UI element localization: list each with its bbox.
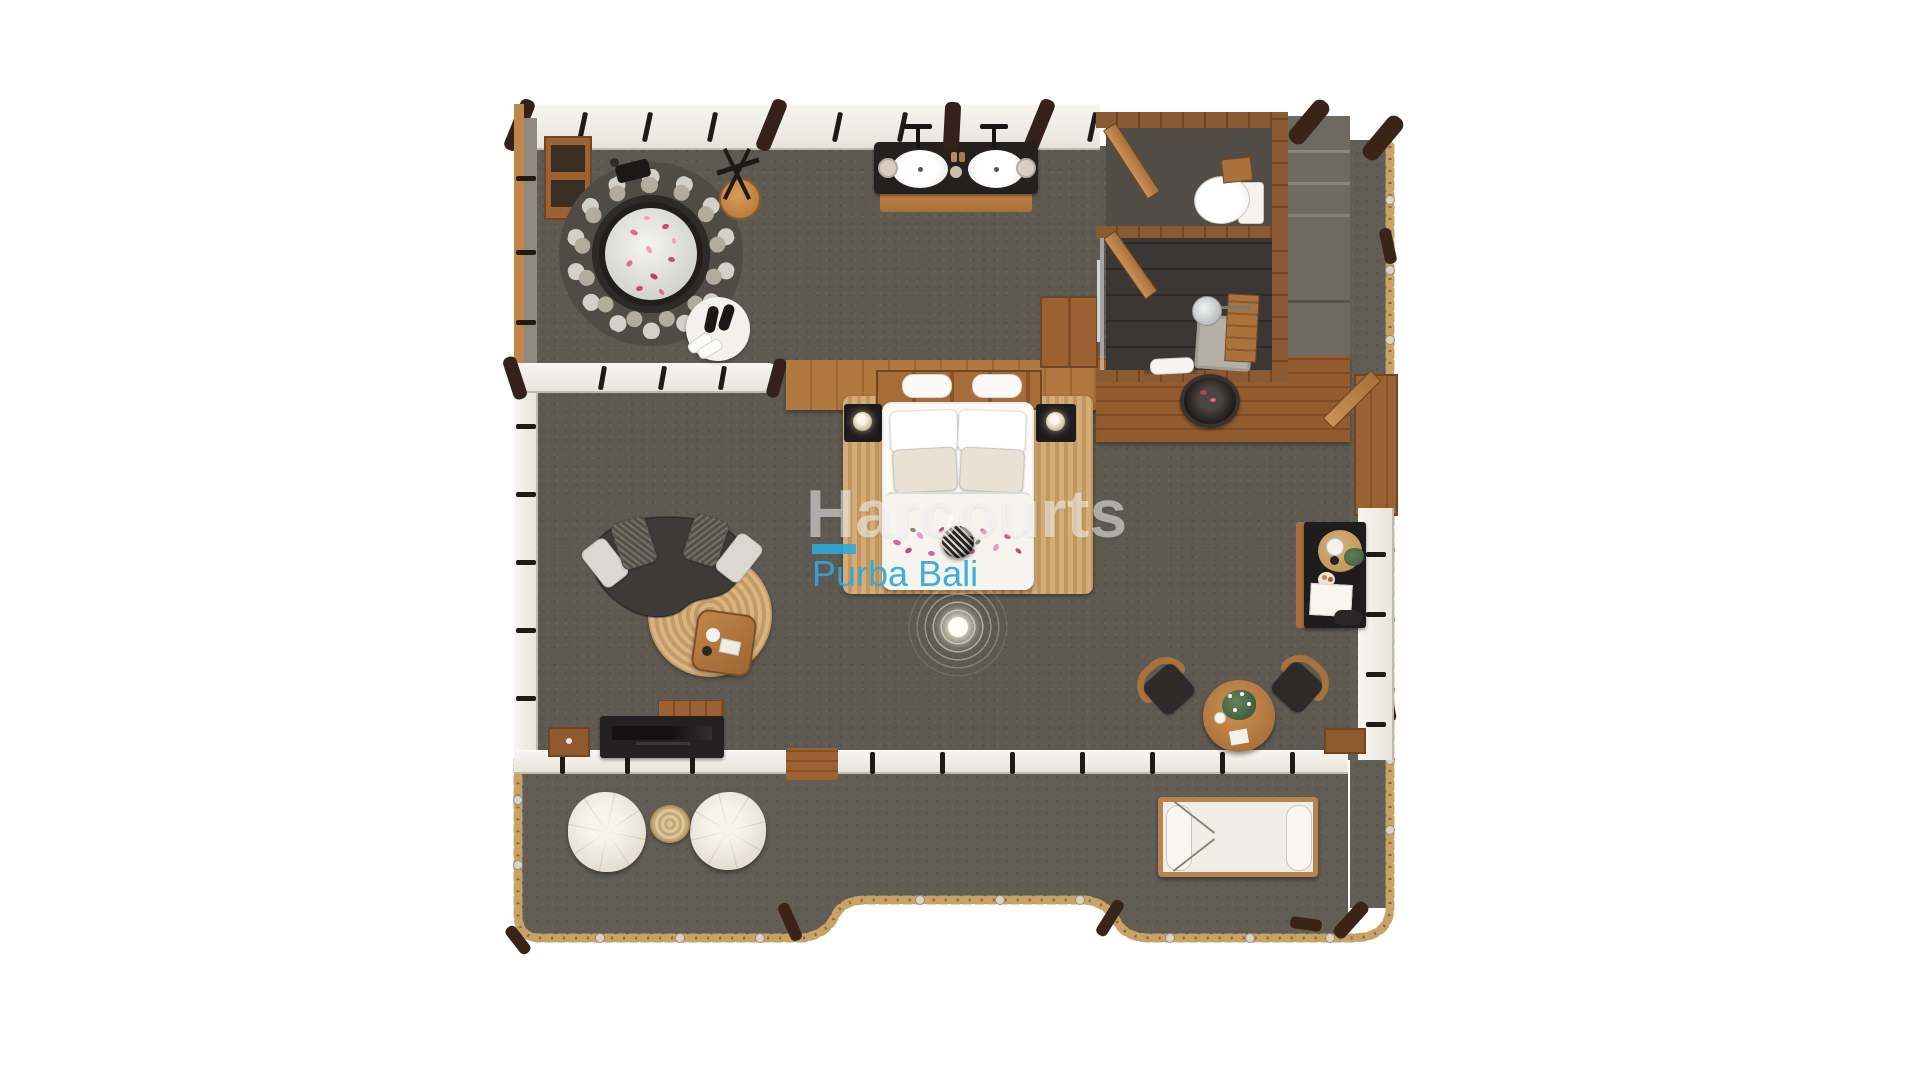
sink-drain	[994, 167, 999, 172]
candle-lamp	[1046, 412, 1065, 431]
threshold-step	[786, 748, 838, 780]
table-saucer	[1220, 724, 1228, 732]
desk-black-kettle	[1334, 610, 1362, 625]
candle-lamp	[853, 412, 872, 431]
headboard-towel-roll	[902, 374, 952, 398]
watermark-subbrand: Purba Bali	[812, 556, 978, 592]
left-wall-upper	[514, 104, 524, 370]
faucet-crossbar	[904, 124, 932, 129]
bathroom-wall-top	[1096, 112, 1288, 128]
plant-flower	[1240, 692, 1244, 696]
wall-bracket	[1366, 612, 1386, 617]
wall-bracket	[1150, 752, 1155, 774]
shower-glass-wall	[1100, 238, 1104, 370]
wall-bracket	[516, 696, 536, 701]
shower-chrome-bar	[1097, 260, 1100, 342]
wall-bracket	[940, 752, 945, 774]
watermark-brand: Harcourts	[806, 480, 1127, 548]
basin-petal	[1210, 398, 1216, 402]
coffee-table-bowl	[702, 646, 712, 656]
wall-bracket	[1220, 752, 1225, 774]
wall-bracket	[1366, 552, 1386, 557]
wall-bracket	[516, 424, 536, 429]
tub-faucet-knob	[610, 158, 619, 167]
wall-bracket	[1080, 752, 1085, 774]
pouffe-left	[568, 792, 646, 872]
tv-screen	[612, 726, 712, 740]
wall-bracket	[1010, 752, 1015, 774]
faucet	[916, 126, 920, 148]
desk-kettle	[1326, 538, 1344, 556]
plant-flower	[1247, 702, 1251, 706]
shower-bench	[1224, 293, 1260, 363]
toilet-shelf	[1221, 156, 1253, 183]
wall-bracket	[516, 492, 536, 497]
sink-drain	[918, 167, 923, 172]
coffee-table-tray-item	[706, 628, 720, 642]
wardrobe	[1040, 296, 1098, 368]
storage-box-knob	[566, 738, 572, 744]
left-wall-upper-infill	[524, 118, 537, 370]
wall-bracket	[1366, 672, 1386, 677]
bathroom-wall-right	[1272, 112, 1288, 382]
wall-bracket	[516, 320, 536, 325]
soap-dish	[1016, 158, 1036, 178]
wall-bracket	[1290, 752, 1295, 774]
pouffe-right	[690, 792, 766, 870]
soap-dish	[878, 158, 898, 178]
wall-bracket	[516, 560, 536, 565]
deck-side-box	[1324, 728, 1366, 754]
plant-flower	[1233, 708, 1237, 712]
bathroom-wall-mid	[1096, 226, 1288, 238]
divider-wall	[514, 363, 782, 393]
rose-petal	[644, 216, 650, 220]
ceiling-light-glow	[948, 617, 968, 637]
shelf-cubby	[551, 145, 585, 172]
stump-side-table	[650, 805, 690, 843]
faucet-crossbar	[980, 124, 1008, 129]
headboard-towel-roll	[972, 374, 1022, 398]
structural-post	[943, 102, 962, 153]
lounger-roll-pillow	[1286, 805, 1312, 871]
wall-bracket	[516, 250, 536, 255]
rolled-towel	[1150, 357, 1195, 375]
basin-petal	[1200, 390, 1207, 395]
table-cup	[1214, 712, 1226, 724]
wall-bracket	[870, 752, 875, 774]
plant-flower	[1228, 694, 1232, 698]
rain-shower-head	[1192, 296, 1222, 326]
desk-cup	[1330, 556, 1339, 565]
fruit	[1322, 575, 1327, 580]
tv-stand-bar	[636, 742, 690, 745]
hot-tub-water	[605, 208, 697, 300]
fruit	[1328, 577, 1333, 582]
wall-bracket	[516, 176, 536, 181]
vanity-accessory	[951, 152, 957, 162]
wall-bracket	[1366, 722, 1386, 727]
vanity-dish	[950, 166, 962, 178]
faucet	[992, 126, 996, 148]
vanity-accessory	[959, 152, 965, 162]
floor-plan-render: Harcourts Purba Bali	[0, 0, 1920, 1080]
wall-bracket	[516, 628, 536, 633]
lounger-roll-pillow	[1166, 805, 1192, 871]
